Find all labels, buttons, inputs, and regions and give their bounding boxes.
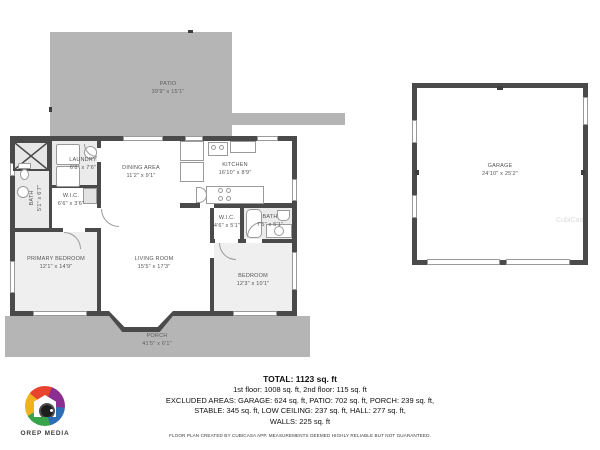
floors-line: 1st floor: 1008 sq. ft, 2nd floor: 115 s…	[110, 385, 490, 396]
camera-lens-icon	[39, 403, 55, 419]
room-label-bath-right: BATH 7'5" x 5'1"	[257, 213, 283, 229]
burner-icon	[226, 196, 231, 201]
room-name: PATIO	[152, 80, 185, 88]
wall	[97, 162, 101, 208]
burner-icon	[218, 188, 223, 193]
survey-tick	[415, 170, 419, 175]
room-name: PORCH	[142, 332, 172, 340]
survey-tick	[497, 86, 503, 90]
room-dims: 4'6" x 5'1"	[214, 222, 240, 230]
window	[233, 311, 277, 316]
orep-media-logo: OREP MEDIA	[13, 386, 77, 437]
room-dims: 24'10" x 25'2"	[482, 170, 518, 178]
room-name: PRIMARY BEDROOM	[27, 255, 85, 263]
survey-tick	[188, 30, 193, 33]
room-label-dining: DINING AREA 11'2" x 9'1"	[122, 164, 160, 180]
room-label-bedroom: BEDROOM 12'3" x 10'1"	[237, 272, 270, 288]
area-summary: TOTAL: 1123 sq. ft 1st floor: 1008 sq. f…	[110, 374, 490, 439]
window	[412, 195, 417, 218]
room-dims: 16'10" x 8'9"	[219, 169, 252, 177]
room-dims: 15'5" x 17'3"	[135, 263, 174, 271]
room-name: LAUNDRY	[69, 156, 97, 164]
patio-strip	[232, 113, 345, 125]
survey-tick	[581, 170, 585, 175]
burner-icon	[218, 196, 223, 201]
room-label-wic-left: W.I.C. 6'6" x 3'6"	[58, 192, 84, 208]
wall	[85, 228, 101, 232]
patio-area	[50, 32, 232, 136]
primary-bedroom-floor	[15, 232, 97, 311]
room-dims: 11'2" x 9'1"	[122, 172, 160, 180]
window	[10, 261, 15, 293]
room-name: W.I.C.	[214, 214, 240, 222]
fridge-icon	[180, 141, 204, 161]
window	[123, 136, 163, 141]
room-dims: 39'9" x 15'1"	[152, 88, 185, 96]
kitchen-island-icon	[206, 186, 264, 204]
garage-door-opening	[506, 259, 570, 265]
room-label-laundry: LAUNDRY 6'8" x 7'6"	[69, 156, 97, 172]
wall	[180, 203, 200, 208]
room-dims: 6'8" x 7'6"	[69, 164, 97, 172]
window	[412, 120, 417, 143]
counter-icon	[230, 141, 256, 153]
room-name: GARAGE	[482, 162, 518, 170]
wall	[210, 239, 215, 243]
disclaimer: FLOOR PLAN CREATED BY CUBICASA APP. MEAS…	[110, 432, 490, 439]
room-label-bath-left: BATH 5'1" x 6'7"	[28, 185, 44, 211]
lens-highlight	[50, 409, 53, 412]
room-label-porch: PORCH 41'5" x 6'1"	[142, 332, 172, 348]
room-dims: 6'6" x 3'6"	[58, 200, 84, 208]
room-label-patio: PATIO 39'9" x 15'1"	[152, 80, 185, 96]
sink-bowl-icon	[219, 145, 224, 150]
room-dims: 7'5" x 5'1"	[257, 221, 283, 229]
room-label-garage: GARAGE 24'10" x 25'2"	[482, 162, 518, 178]
wall	[262, 239, 297, 243]
room-label-living: LIVING ROOM 15'5" x 17'3"	[135, 255, 174, 271]
excluded-areas-line-3: WALLS: 225 sq. ft	[110, 417, 490, 428]
room-name: W.I.C.	[58, 192, 84, 200]
room-dims: 41'5" x 6'1"	[142, 340, 172, 348]
room-name: BEDROOM	[237, 272, 270, 280]
camera-logo-icon	[25, 386, 65, 426]
sink-bowl-icon	[211, 145, 216, 150]
floor-plan-page: PATIO 39'9" x 15'1"	[0, 0, 600, 450]
window	[292, 179, 297, 201]
wall	[97, 228, 101, 316]
room-name: LIVING ROOM	[135, 255, 174, 263]
room-dims: 5'1" x 6'7"	[36, 185, 44, 211]
room-name: BATH	[257, 213, 283, 221]
wall	[97, 141, 101, 148]
wall	[10, 228, 63, 232]
room-name: DINING AREA	[122, 164, 160, 172]
counter-icon	[180, 162, 204, 182]
wall	[240, 208, 244, 239]
wall	[210, 258, 214, 316]
house-shape-icon	[34, 395, 56, 417]
brand-name: OREP MEDIA	[13, 430, 77, 437]
total-area-line: TOTAL: 1123 sq. ft	[110, 374, 490, 385]
window	[33, 311, 87, 316]
room-label-primary-bedroom: PRIMARY BEDROOM 12'1" x 14'9"	[27, 255, 85, 271]
room-name: KITCHEN	[219, 161, 252, 169]
wic-shelf-icon	[83, 188, 97, 204]
survey-tick	[49, 107, 52, 112]
room-label-wic-right: W.I.C. 4'6" x 5'1"	[214, 214, 240, 230]
watermark: CubiCasa	[556, 217, 587, 224]
wall	[238, 239, 246, 243]
window	[292, 252, 297, 290]
burner-icon	[226, 188, 231, 193]
room-dims: 12'3" x 10'1"	[237, 280, 270, 288]
excluded-areas-line-1: EXCLUDED AREAS: GARAGE: 624 sq. ft, PATI…	[110, 396, 490, 407]
room-label-kitchen: KITCHEN 16'10" x 8'9"	[219, 161, 252, 177]
room-name: BATH	[28, 185, 36, 211]
garage-door-opening	[427, 259, 500, 265]
toilet-bowl-icon	[20, 169, 29, 180]
room-dims: 12'1" x 14'9"	[27, 263, 85, 271]
window	[583, 97, 588, 125]
excluded-areas-line-2: STABLE: 345 sq. ft, LOW CEILING: 237 sq.…	[110, 406, 490, 417]
window	[257, 136, 278, 141]
